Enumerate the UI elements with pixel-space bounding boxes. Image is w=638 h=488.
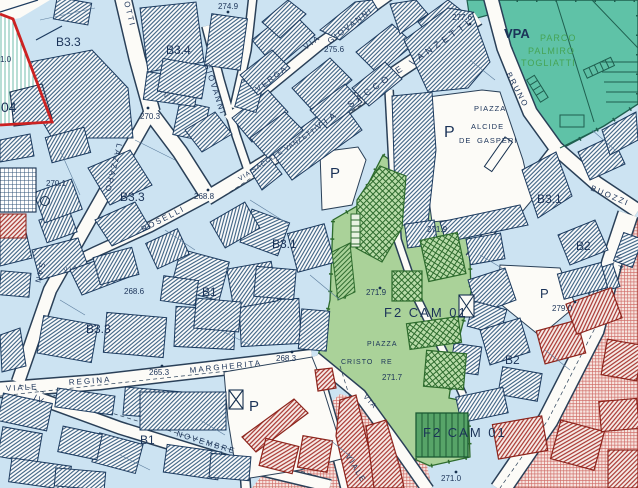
- svg-text:P: P: [330, 165, 340, 182]
- svg-text:275.6: 275.6: [324, 45, 345, 54]
- svg-text:B3.1: B3.1: [272, 237, 297, 251]
- svg-text:P: P: [249, 398, 259, 415]
- svg-text:B3.3: B3.3: [86, 322, 111, 336]
- svg-text:268.8: 268.8: [194, 192, 215, 201]
- svg-text:274.9: 274.9: [218, 2, 239, 11]
- svg-text:268.3: 268.3: [276, 354, 297, 363]
- svg-text:B2: B2: [576, 239, 591, 253]
- svg-text:RE: RE: [381, 359, 393, 366]
- svg-text:B1: B1: [202, 285, 217, 299]
- svg-text:B2: B2: [505, 353, 520, 367]
- svg-text:P: P: [540, 286, 549, 301]
- svg-text:270.3: 270.3: [140, 112, 161, 121]
- svg-text:PIAZZA: PIAZZA: [367, 341, 398, 348]
- svg-text:PALMIRO: PALMIRO: [528, 46, 575, 56]
- svg-text:B1: B1: [140, 433, 155, 447]
- svg-text:TOGLIATTI: TOGLIATTI: [521, 58, 576, 68]
- svg-text:268.6: 268.6: [124, 287, 145, 296]
- svg-text:271.0: 271.0: [441, 474, 462, 483]
- svg-text:CRISTO: CRISTO: [341, 359, 373, 366]
- svg-text:04: 04: [1, 99, 17, 115]
- svg-text:277.6: 277.6: [452, 13, 473, 22]
- svg-text:B3.1: B3.1: [537, 192, 562, 206]
- svg-text:B3.3: B3.3: [120, 190, 145, 204]
- svg-text:VIALE: VIALE: [6, 382, 39, 393]
- svg-text:271.9: 271.9: [366, 288, 387, 297]
- svg-text:PARCO: PARCO: [540, 33, 576, 43]
- svg-text:PIAZZA: PIAZZA: [474, 104, 506, 113]
- svg-text:ALCIDE: ALCIDE: [471, 122, 504, 131]
- svg-text:P: P: [444, 124, 455, 141]
- svg-text:271.7: 271.7: [382, 373, 403, 382]
- svg-text:DE: DE: [459, 136, 471, 145]
- svg-text:271.9: 271.9: [427, 225, 448, 234]
- svg-text:F2 CAM 01: F2 CAM 01: [384, 305, 468, 320]
- svg-text:B3.3: B3.3: [56, 35, 81, 49]
- svg-text:GASPERI: GASPERI: [477, 136, 517, 145]
- svg-text:265.3: 265.3: [149, 368, 170, 377]
- svg-text:279.0: 279.0: [552, 304, 573, 313]
- svg-text:270.1: 270.1: [46, 179, 67, 188]
- svg-text:F2 CAM 01: F2 CAM 01: [423, 425, 507, 440]
- svg-text:VPA: VPA: [504, 26, 530, 41]
- svg-text:1.0: 1.0: [0, 55, 12, 64]
- svg-text:B3.4: B3.4: [166, 43, 191, 57]
